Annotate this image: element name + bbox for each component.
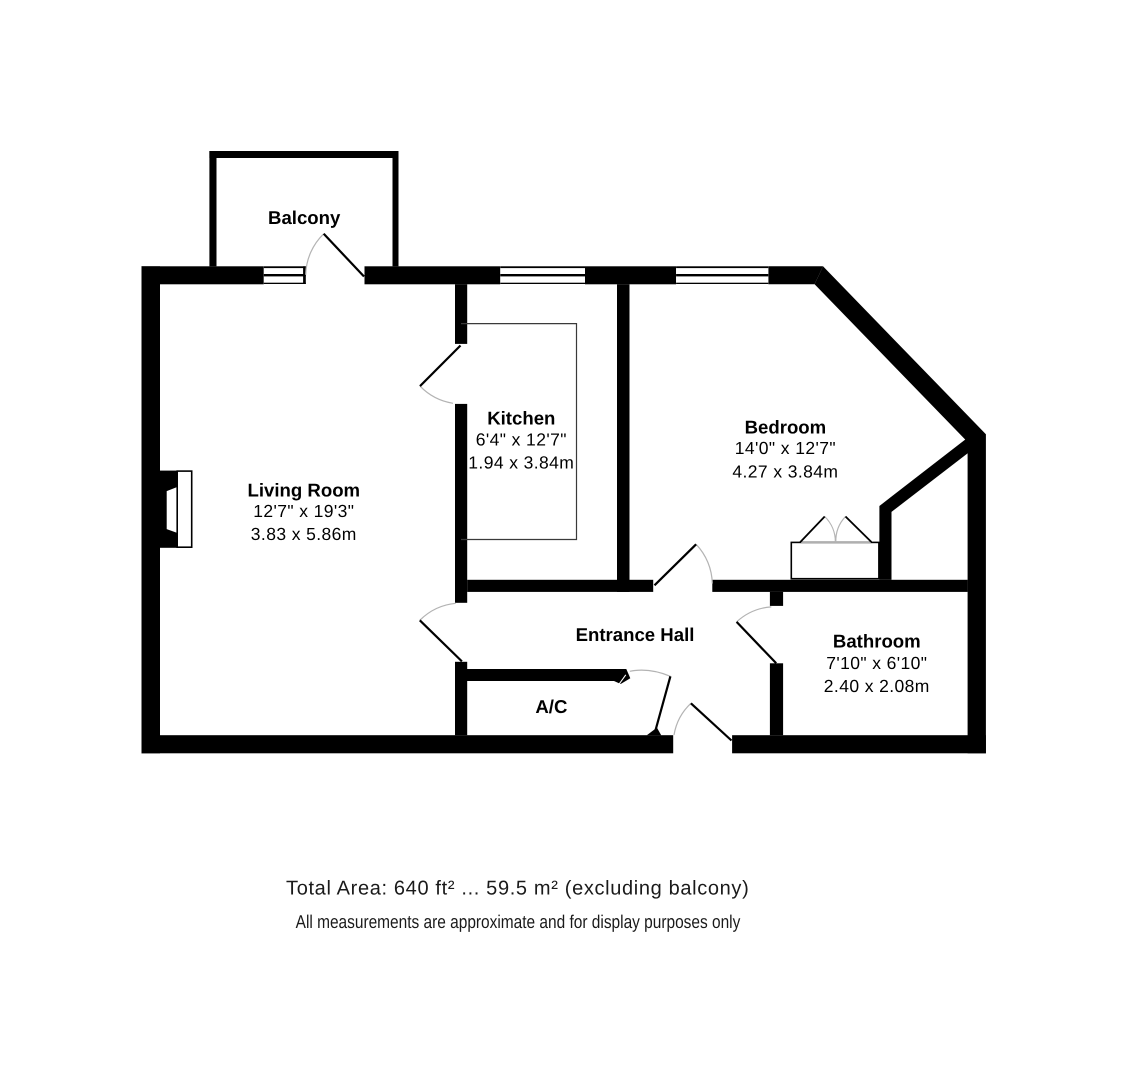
svg-text:4.27 x 3.84m: 4.27 x 3.84m	[732, 462, 838, 482]
svg-text:All measurements are approxima: All measurements are approximate and for…	[296, 911, 741, 932]
svg-text:Bathroom: Bathroom	[833, 631, 921, 652]
svg-text:12'7" x 19'3": 12'7" x 19'3"	[253, 501, 354, 521]
svg-text:6'4" x 12'7": 6'4" x 12'7"	[476, 429, 567, 449]
svg-text:3.83 x 5.86m: 3.83 x 5.86m	[251, 524, 357, 544]
svg-text:Bedroom: Bedroom	[745, 417, 827, 438]
svg-text:A/C: A/C	[535, 696, 567, 717]
svg-text:Entrance Hall: Entrance Hall	[576, 624, 695, 645]
svg-text:Living Room: Living Room	[248, 479, 361, 500]
svg-text:14'0" x 12'7": 14'0" x 12'7"	[735, 438, 836, 458]
svg-text:Balcony: Balcony	[268, 207, 341, 228]
svg-text:7'10" x 6'10": 7'10" x 6'10"	[826, 653, 927, 673]
svg-text:2.40 x 2.08m: 2.40 x 2.08m	[824, 676, 930, 696]
svg-text:Total Area: 640 ft² ... 59.5 m: Total Area: 640 ft² ... 59.5 m² (excludi…	[286, 877, 749, 899]
svg-text:Kitchen: Kitchen	[487, 408, 555, 429]
svg-text:1.94 x 3.84m: 1.94 x 3.84m	[468, 452, 574, 472]
